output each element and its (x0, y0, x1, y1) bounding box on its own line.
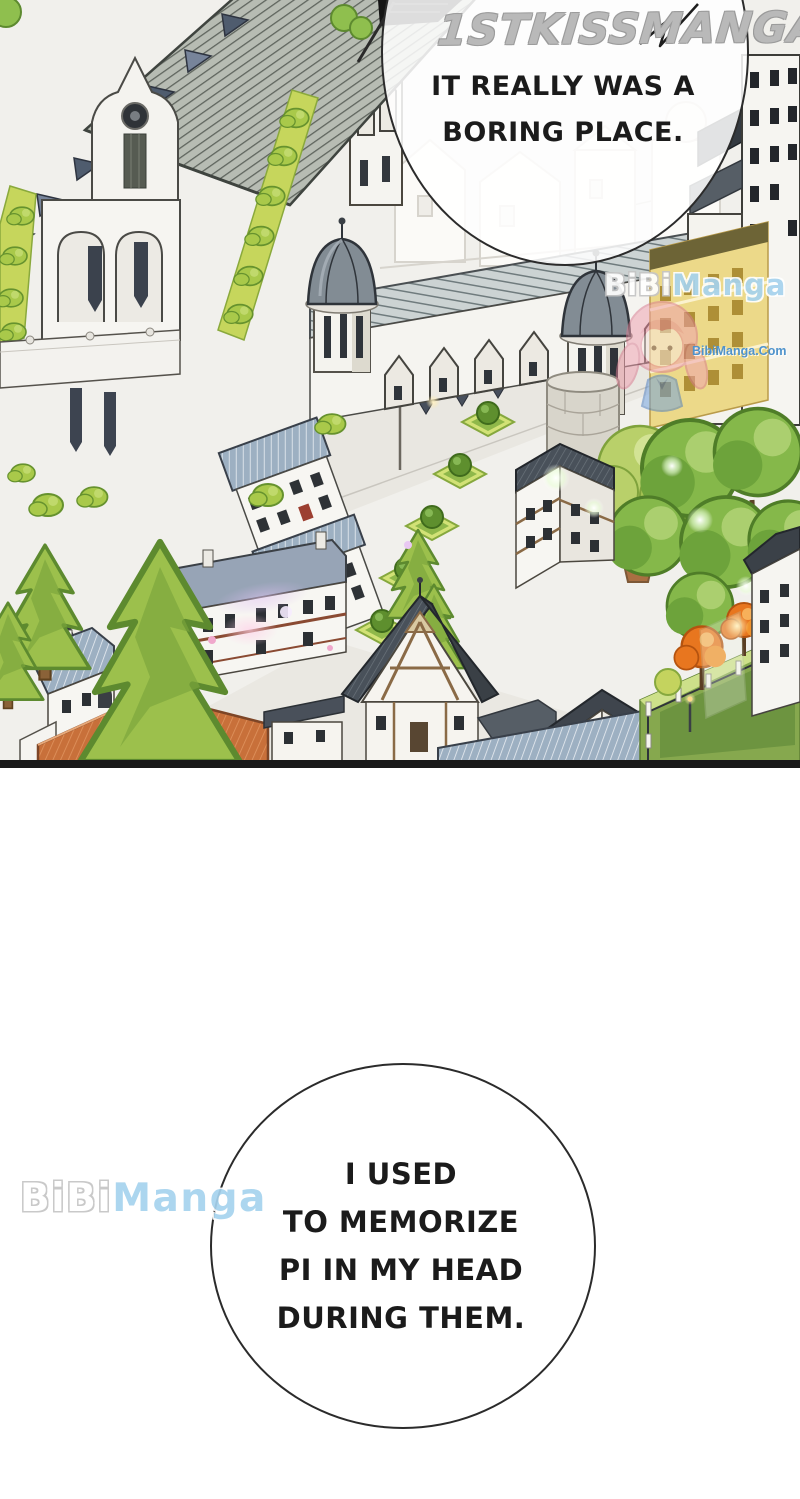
watermark-logo-bibi: BiBi (20, 1176, 112, 1221)
edge-house (744, 527, 800, 716)
speech-bubble-tail (632, 0, 712, 52)
bubble-text-line: DURING THEM. (221, 1294, 581, 1342)
bubble-text-line: I USED (221, 1150, 581, 1198)
speech-bubble-bottom-text: I USED TO MEMORIZE PI IN MY HEAD DURING … (221, 1150, 581, 1342)
speech-bubble-top-text: IT REALLY WAS A BORING PLACE. (383, 64, 743, 156)
yellow-building (650, 222, 768, 428)
bubble-text-line: TO MEMORIZE (221, 1198, 581, 1246)
bubble-text-line: PI IN MY HEAD (221, 1246, 581, 1294)
panel-edge (0, 760, 800, 768)
bubble-text-line: BORING PLACE. (383, 110, 743, 156)
bubble-text-line: IT REALLY WAS A (383, 64, 743, 110)
comic-page: IT REALLY WAS A BORING PLACE. I USED TO … (0, 0, 800, 1499)
